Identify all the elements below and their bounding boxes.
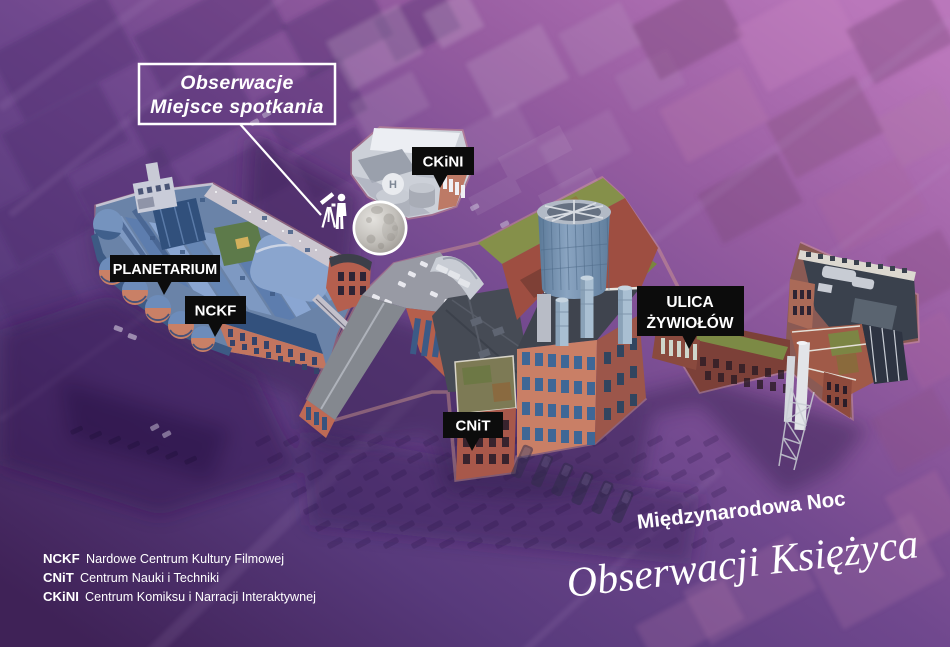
svg-text:Obserwacje: Obserwacje <box>180 72 293 94</box>
svg-text:CNiT: CNiT <box>43 570 74 585</box>
svg-text:NCKF: NCKF <box>43 551 80 566</box>
svg-text:Centrum Nauki i Techniki: Centrum Nauki i Techniki <box>80 571 219 585</box>
svg-text:Nardowe Centrum Kultury Filmow: Nardowe Centrum Kultury Filmowej <box>86 552 284 566</box>
svg-text:Centrum Komiksu i Narracji Int: Centrum Komiksu i Narracji Interaktywnej <box>85 590 316 604</box>
svg-text:CNiT: CNiT <box>456 418 491 435</box>
svg-text:ULICA: ULICA <box>666 294 713 311</box>
svg-text:PLANETARIUM: PLANETARIUM <box>113 262 217 278</box>
svg-text:Miejsce spotkania: Miejsce spotkania <box>150 96 324 118</box>
svg-text:CKiNI: CKiNI <box>43 589 79 604</box>
svg-text:CKiNI: CKiNI <box>423 154 464 171</box>
svg-text:ŻYWIOŁÓW: ŻYWIOŁÓW <box>647 314 734 332</box>
svg-text:NCKF: NCKF <box>195 303 237 320</box>
svg-text:H: H <box>389 179 397 191</box>
